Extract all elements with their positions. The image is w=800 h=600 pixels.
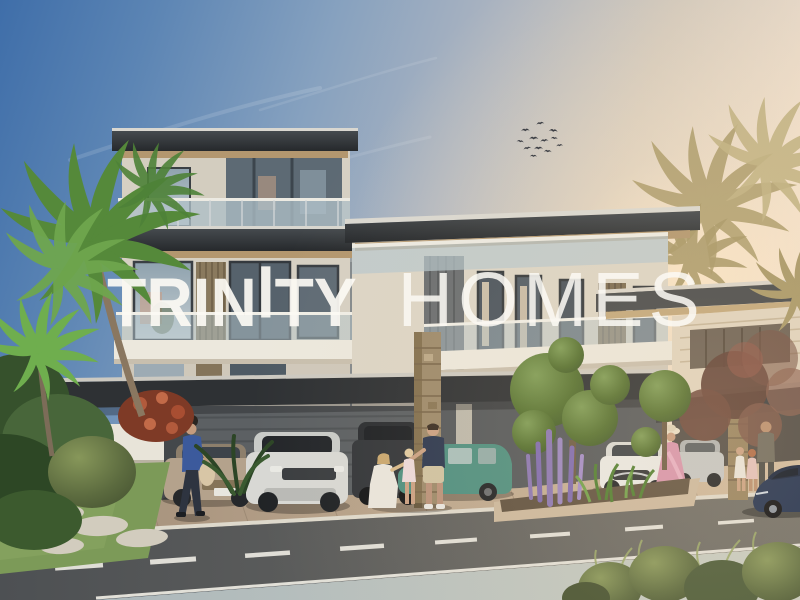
birds-flock [517,122,564,158]
silver-land-rover-suv [246,432,348,512]
scene-illustration [0,0,800,600]
rendering-canvas: TRINITY HOMES [0,0,800,600]
red-flowering-shrub [118,390,194,442]
